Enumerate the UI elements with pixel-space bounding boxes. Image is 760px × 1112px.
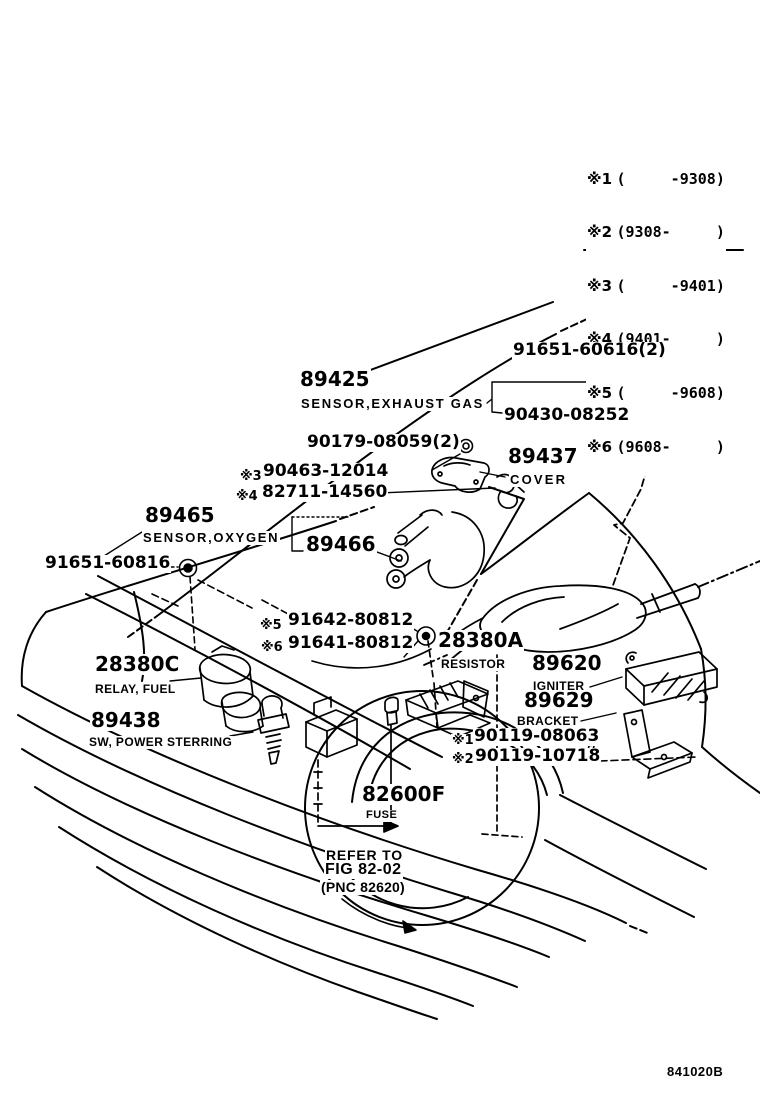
applicability-notes-table: ※1 ( -9308) ※2 (9308- ) ※3 ( -9401) ※4 (… <box>586 138 726 476</box>
oxygen-sensor-lower <box>387 510 484 588</box>
parts-catalog-page: ※1 ( -9308) ※2 (9308- ) ※3 ( -9401) ※4 (… <box>0 0 760 1112</box>
callout-28380C-name: RELAY, FUEL <box>94 683 177 696</box>
callout-28380C: 28380C <box>94 654 180 675</box>
callout-82711-prefix: ※4 <box>235 490 259 504</box>
callout-90119-10718-prefix: ※2 <box>451 753 475 767</box>
note-ref: ※5 <box>587 384 612 402</box>
callout-89438: 89438 <box>90 710 162 731</box>
callout-89466: 89466 <box>305 534 377 555</box>
note-ref: ※1 <box>587 170 612 188</box>
callout-89465: 89465 <box>144 505 216 526</box>
sensor-cover <box>432 458 489 493</box>
callout-89425: 89425 <box>299 369 371 390</box>
callout-91641-80812: 91641-80812 <box>287 635 414 653</box>
note-range: ( -9608) <box>616 384 724 402</box>
callout-91651-60816: 91651-60816 <box>44 555 171 573</box>
callout-28380A: 28380A <box>437 630 524 651</box>
callout-82600F: 82600F <box>361 784 446 805</box>
callout-90119-08063-prefix: ※1 <box>451 734 475 748</box>
note-ref: ※3 <box>587 277 612 295</box>
note-range: (9608- ) <box>616 438 724 456</box>
callout-91642-prefix: ※5 <box>259 619 283 633</box>
callout-82600F-name: FUSE <box>365 810 398 822</box>
callout-28380A-name: RESISTOR <box>440 658 506 671</box>
note-ref: ※6 <box>587 438 612 456</box>
callout-82711-14560: 82711-14560 <box>261 484 388 502</box>
note-row: ※2 (9308- ) <box>587 225 725 245</box>
callout-91642-80812: 91642-80812 <box>287 612 414 630</box>
callout-89620: 89620 <box>531 653 603 674</box>
note-row: ※3 ( -9401) <box>587 279 725 299</box>
callout-89438-name: SW, POWER STERRING <box>88 736 233 749</box>
igniter-bracket <box>624 710 692 778</box>
note-row: ※1 ( -9308) <box>587 172 725 192</box>
callout-90463-12014: 90463-12014 <box>262 463 389 481</box>
callout-89629: 89629 <box>523 690 595 711</box>
callout-89465-name: SENSOR,OXYGEN <box>142 531 280 545</box>
callout-91641-prefix: ※6 <box>260 641 284 655</box>
note-row: ※5 ( -9608) <box>587 386 725 406</box>
callout-89437: 89437 <box>507 446 579 467</box>
figure-code: 841020B <box>666 1065 724 1079</box>
callout-89425-name: SENSOR,EXHAUST GAS <box>300 397 485 411</box>
callout-90463-prefix: ※3 <box>239 470 263 484</box>
note-row: ※6 (9608- ) <box>587 440 725 460</box>
reference-note-line2: FIG 82-02 <box>324 862 403 879</box>
reference-note-line3: (PNC 82620) <box>320 880 406 895</box>
note-range: (9308- ) <box>616 223 724 241</box>
callout-90119-10718: 90119-10718 <box>474 748 601 766</box>
callout-90430-08252: 90430-08252 <box>503 407 630 425</box>
note-ref: ※2 <box>587 223 612 241</box>
callout-90119-08063: 90119-08063 <box>473 728 600 746</box>
callout-90179-08059: 90179-08059(2) <box>306 434 461 452</box>
note-range: ( -9308) <box>616 170 724 188</box>
power-steering-switch <box>258 696 289 764</box>
callout-91651-60616: 91651-60616(2) <box>512 342 667 360</box>
callout-89437-name: COVER <box>509 473 568 487</box>
note-range: ( -9401) <box>616 277 724 295</box>
